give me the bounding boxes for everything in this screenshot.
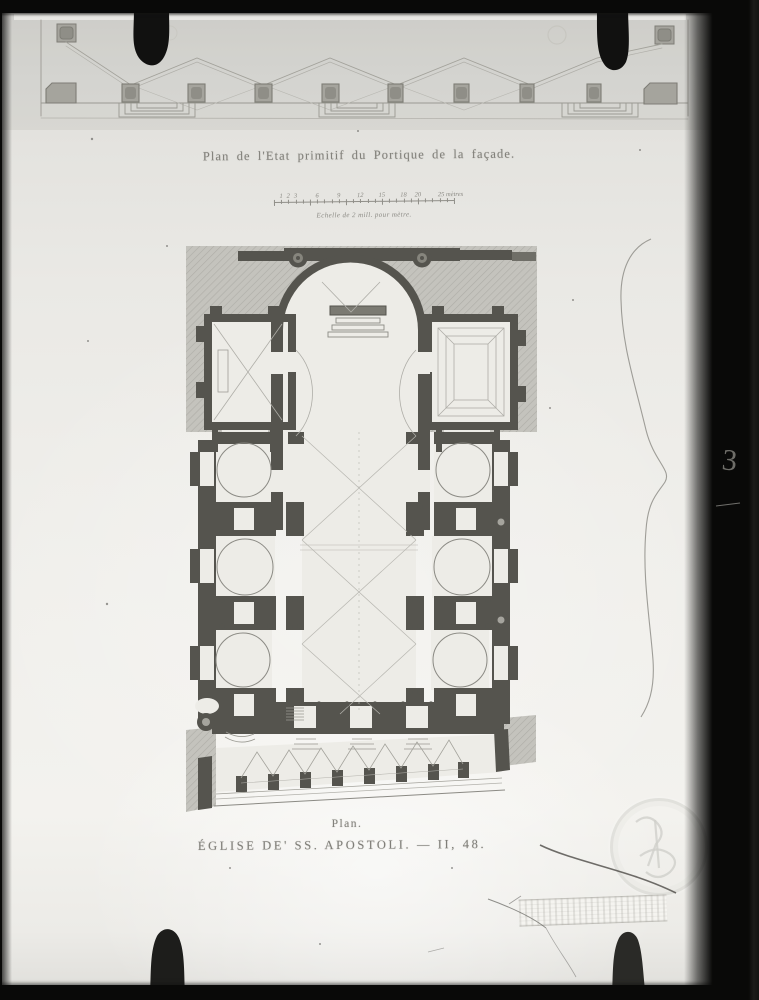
scale-tick	[425, 198, 426, 202]
hair-scratch	[621, 239, 667, 717]
scale-tick	[324, 199, 325, 203]
scale-tick-label: 18	[400, 192, 407, 199]
scale-tick	[317, 199, 318, 203]
scale-tick	[353, 199, 354, 203]
scale-tick	[339, 199, 340, 203]
scale-tick-label: 20	[415, 191, 422, 198]
plan-label: Plan.	[332, 818, 363, 830]
tab-top-left	[133, 8, 169, 65]
scale-tick	[396, 199, 397, 203]
plate-title: Plan de l'Etat primitif du Portique de l…	[203, 147, 515, 165]
scale-tick-label: 6	[315, 192, 318, 199]
scale-tick	[310, 200, 311, 206]
scale-tick-label: 2	[287, 193, 290, 200]
scale-tick	[346, 199, 347, 205]
tab-top-right	[597, 6, 629, 70]
tab-bottom-right	[612, 932, 646, 998]
scale-tick	[296, 200, 297, 204]
scale-tick-label: 1	[279, 193, 282, 200]
scale-tick	[368, 199, 369, 203]
scale-tick	[375, 199, 376, 203]
scale-tick	[303, 200, 304, 204]
scale-ruler	[274, 200, 454, 210]
scale-tick	[418, 198, 419, 204]
scale-tick	[411, 198, 412, 202]
top-portico-strip-drawing	[14, 14, 688, 119]
scale-tick-label: 15	[379, 192, 386, 199]
scale-tick	[274, 200, 275, 206]
scale-tick	[288, 200, 289, 204]
tab-bottom-left	[150, 929, 185, 998]
church-floor-plan-drawing	[186, 246, 537, 812]
scale-tick	[404, 199, 405, 203]
stamp-monogram	[636, 817, 675, 877]
scale-tick	[440, 198, 441, 202]
scale-tick	[382, 199, 383, 205]
scale-tick	[332, 199, 333, 203]
scale-tick	[454, 198, 455, 204]
scale-tick	[360, 199, 361, 203]
main-caption: ÉGLISE DE' SS. APOSTOLI. — II, 48.	[198, 837, 486, 854]
scale-tick-label: 12	[357, 192, 364, 199]
scale-tick	[432, 198, 433, 202]
scale-tick-label: 3	[294, 193, 297, 200]
scale-tick	[389, 199, 390, 203]
scale-tick	[281, 200, 282, 204]
glass-crack	[540, 845, 676, 893]
glass-plate-photo: Plan de l'Etat primitif du Portique de l…	[0, 0, 759, 1000]
scale-tick-label: 25 mètres	[438, 191, 463, 198]
scale-tick	[447, 198, 448, 202]
scale-bar: 123691215182025 mètres Echelle de 2 mill…	[274, 191, 454, 220]
scale-tick-label: 9	[337, 192, 340, 199]
